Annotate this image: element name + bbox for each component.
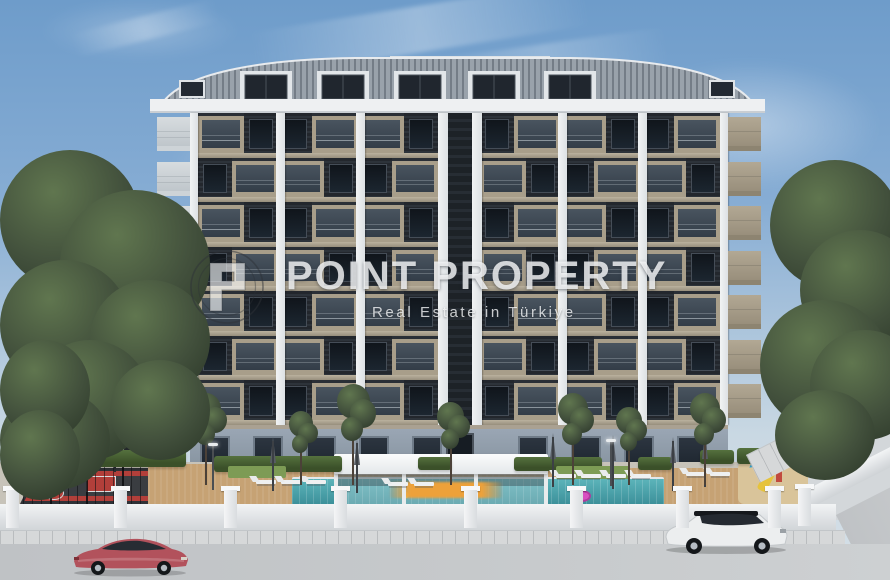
fence-pillar <box>676 490 689 528</box>
hedge <box>638 457 672 470</box>
ornamental-tree-foliage <box>694 423 714 445</box>
street-lamp <box>610 442 612 486</box>
closed-parasol <box>548 433 558 493</box>
street-lamp <box>212 446 214 490</box>
fence-corner-pillar <box>798 488 811 526</box>
fence-pillar <box>334 490 347 528</box>
sun-lounger <box>306 480 326 484</box>
tree <box>775 390 875 480</box>
fence-pillar <box>570 490 583 528</box>
ornamental-tree-foliage <box>441 429 459 449</box>
ornamental-tree-foliage <box>292 435 308 453</box>
red-sports-car <box>68 531 192 577</box>
ornamental-tree-foliage <box>620 432 637 451</box>
fence-pillar <box>6 490 19 528</box>
sun-lounger <box>631 474 651 478</box>
car-taillight <box>74 557 79 560</box>
sun-lounger <box>414 482 434 486</box>
render-scene: POINT PROPERTY Real Estate in Türkiye <box>0 0 890 580</box>
sun-lounger <box>281 480 301 484</box>
fence-pillar <box>768 490 781 528</box>
fence-pillar <box>224 490 237 528</box>
car-headlight <box>181 557 187 560</box>
sun-lounger <box>581 474 601 478</box>
ornamental-tree-foliage <box>562 423 582 445</box>
fence-pillar <box>114 490 127 528</box>
ornamental-tree-foliage <box>341 417 363 441</box>
sun-lounger <box>710 472 730 476</box>
tree <box>110 360 210 460</box>
suv-grille <box>780 529 786 533</box>
hedge <box>418 457 452 470</box>
fence-pillar <box>464 490 477 528</box>
sun-lounger <box>388 482 408 486</box>
foreground-tree <box>0 410 80 500</box>
closed-parasol <box>268 437 278 497</box>
